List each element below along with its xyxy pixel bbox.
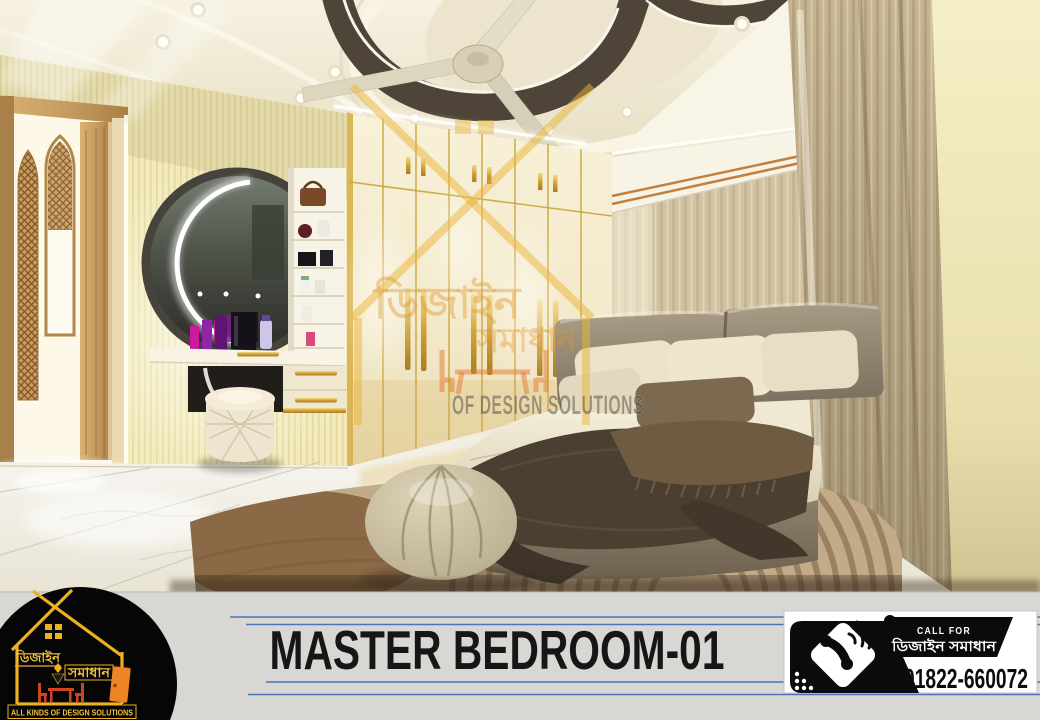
logo-tagline: ALL KINDS OF DESIGN SOLUTIONS [11,708,133,718]
jali-arch-panel [18,150,38,400]
phone-number: 01822-660072 [904,663,1028,694]
logo-door-icon [109,666,131,703]
bedroom-render: ডিজাইন সমাধান OF DESIGN SOLUTIONS MASTER… [0,0,1040,720]
page-title: MASTER BEDROOM-01 [270,619,725,681]
tufted-stool [198,387,282,473]
promo-card: ডিজাইন সমাধান OF DESIGN SOLUTIONS MASTER… [0,0,1040,720]
contact-brand-bn: ডিজাইন সমাধান [891,637,997,654]
call-for-label: CALL FOR [917,626,971,637]
watermark-bn2: সমাধান [476,322,579,360]
watermark-bn1: ডিজাইন [372,276,522,328]
watermark-tagline: OF DESIGN SOLUTIONS [452,390,644,420]
shelf-column [288,168,346,364]
logo-text-bn2: সমাধান [67,665,111,680]
pillow [761,330,860,393]
dresser-drawers [283,366,346,413]
contact-badge: CALL FOR ডিজাইন সমাধান 01822-660072 [784,611,1037,694]
logo-text-bn1: ডিজাইন [15,649,61,665]
arched-wood-doorway [0,95,130,480]
